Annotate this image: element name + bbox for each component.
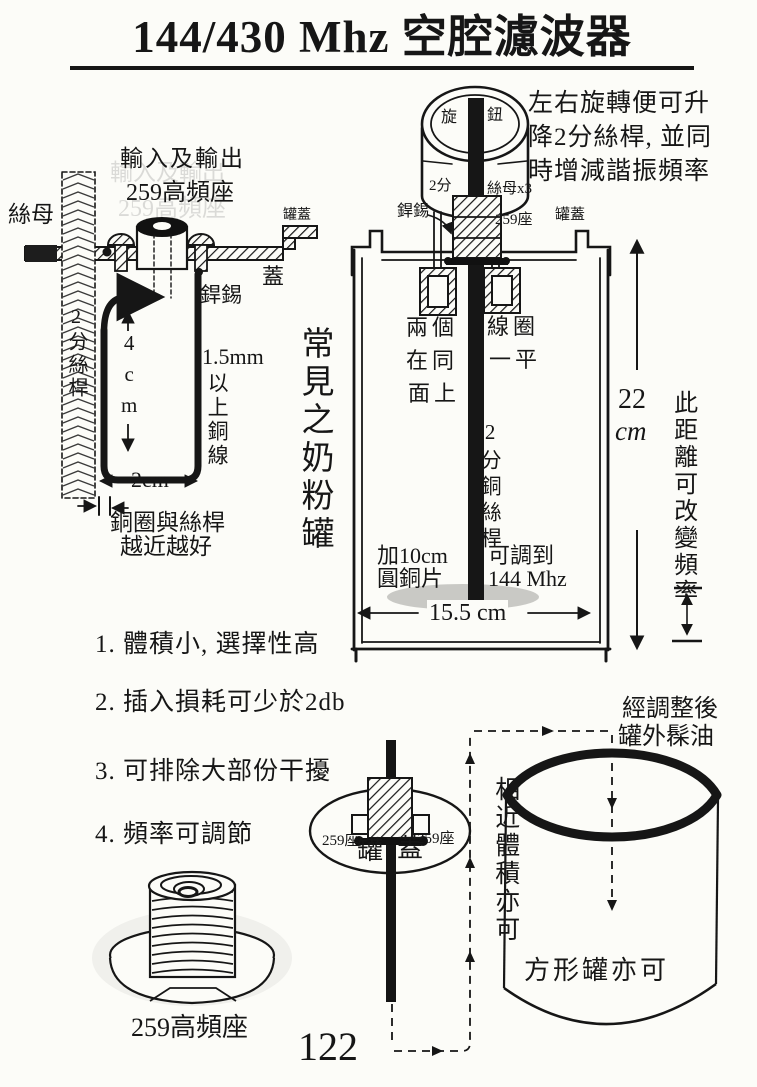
feature-item-1: 1. 體積小, 選擇性高 — [95, 631, 320, 660]
coil-note-l3: 面上 — [408, 381, 460, 406]
height-value: 22 — [618, 384, 646, 416]
scanned-page: 144/430 Mhz 空腔濾波器 左右旋轉便可升 降2分絲桿, 並同 時增減諧… — [0, 0, 757, 1087]
lid-top-view-drawing — [310, 740, 470, 1002]
coil-note-r1: 線圈 — [487, 314, 539, 339]
coil-note-l1: 兩個 — [406, 315, 458, 340]
connector-label: 259高頻座 — [131, 1013, 248, 1043]
io-label-line1: 輸入及輸出 — [120, 146, 245, 172]
knob-note-line1: 左右旋轉便可升 — [528, 90, 710, 119]
wire-note: 以上銅線 — [205, 372, 229, 468]
coil-note-l2: 在同 — [406, 348, 458, 373]
topview-lid-char-l: 罐 — [357, 836, 383, 866]
so239-connector-drawing — [92, 872, 292, 1006]
socket-259-label: 259座 — [495, 212, 533, 229]
altcan-note-line1: 經調整後 — [622, 696, 718, 724]
disc-note-line1: 加10cm — [377, 543, 448, 568]
solder-label-can: 銲錫 — [397, 203, 429, 221]
knob-note-line2: 降2分絲桿, 並同 — [528, 124, 712, 153]
diameter-label: 15.5 cm — [427, 600, 508, 628]
altcan-side-note: 相近體積亦可 — [490, 776, 519, 944]
height-4cm-label: 4cm — [115, 331, 143, 424]
nuts-x3-label: 絲母x3 — [487, 181, 532, 198]
page-number: 122 — [298, 1024, 358, 1070]
can-lid-label: 罐蓋 — [555, 207, 585, 224]
feature-item-2: 2. 插入損耗可少於2db — [95, 689, 346, 718]
feature-item-4: 4. 頻率可調節 — [95, 821, 253, 850]
rod-label-left: 2分絲桿 — [64, 306, 87, 400]
topview-socket-left-label: 259座 — [322, 833, 360, 850]
can-lid-label-left: 罐蓋 — [283, 208, 311, 224]
gap-note-line1: 銅圈與絲桿 — [110, 510, 225, 536]
knob-char-right: 鈕 — [487, 107, 503, 125]
nut-label: 絲母 — [8, 202, 54, 228]
tune-note-line2: 144 Mhz — [488, 566, 567, 591]
feature-item-3: 3. 可排除大部份干擾 — [95, 758, 331, 787]
rod-size-label: 2分 — [429, 178, 452, 195]
coil-note-r2: 一平 — [489, 347, 541, 372]
altcan-inner-note: 方形罐亦可 — [524, 956, 669, 986]
gap-note-line2: 越近越好 — [120, 534, 212, 560]
knob-note-line3: 時增減諧振頻率 — [528, 158, 710, 187]
topview-lid-char-r: 蓋 — [397, 834, 423, 864]
can-caption: 常見之奶粉罐 — [294, 326, 332, 554]
solder-label-left: 銲錫 — [200, 283, 242, 307]
lid-label: 蓋 — [262, 264, 284, 289]
page-title: 144/430 Mhz 空腔濾波器 — [70, 12, 694, 70]
height-note: 此距離可改變頻率 — [668, 390, 696, 606]
knob-char-left: 旋 — [441, 109, 457, 127]
io-label-line2: 259高頻座 — [126, 180, 234, 208]
height-unit: cm — [615, 416, 646, 447]
width-2cm-label: 2cm — [131, 467, 169, 492]
tune-note-line1: 可調到 — [488, 543, 554, 568]
altcan-note-line2: 罐外髹油 — [618, 724, 714, 752]
wire-size-label: 1.5mm — [202, 344, 264, 369]
rod-label-can: 2分銅絲桿 — [478, 420, 502, 553]
disc-note-line2: 圓銅片 — [377, 566, 443, 591]
